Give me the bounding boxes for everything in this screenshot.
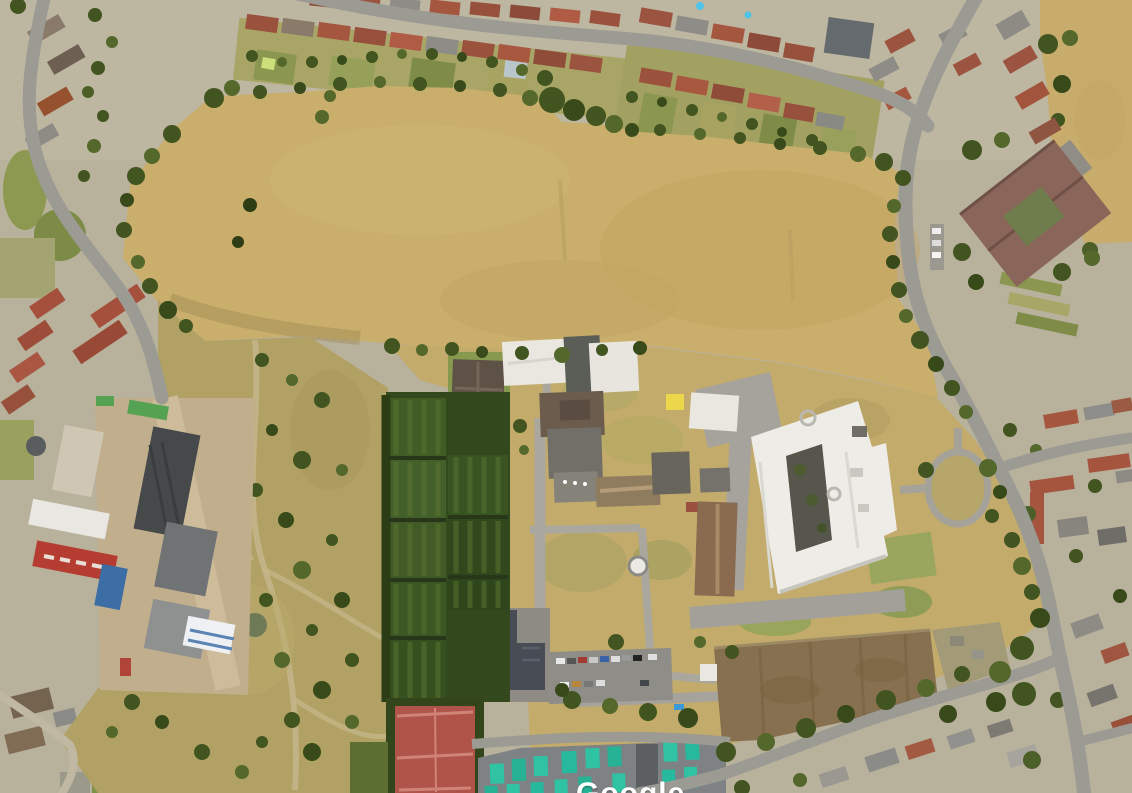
aerial-imagery bbox=[0, 0, 1132, 793]
block-white-small bbox=[689, 392, 739, 431]
building-brown-gable bbox=[694, 501, 737, 596]
yellow-structure bbox=[666, 394, 684, 410]
storage-tank bbox=[629, 557, 647, 575]
kiosk-white bbox=[700, 664, 717, 681]
slate-roof-building bbox=[824, 17, 875, 59]
block-gray-b bbox=[553, 471, 598, 503]
allotment-gardens bbox=[386, 392, 510, 702]
google-watermark[interactable]: Google bbox=[576, 777, 685, 793]
oval-green bbox=[928, 452, 988, 524]
block-gray-a bbox=[547, 427, 603, 479]
satellite-map-canvas[interactable]: Google bbox=[0, 0, 1132, 793]
block-small-dark bbox=[651, 451, 690, 494]
